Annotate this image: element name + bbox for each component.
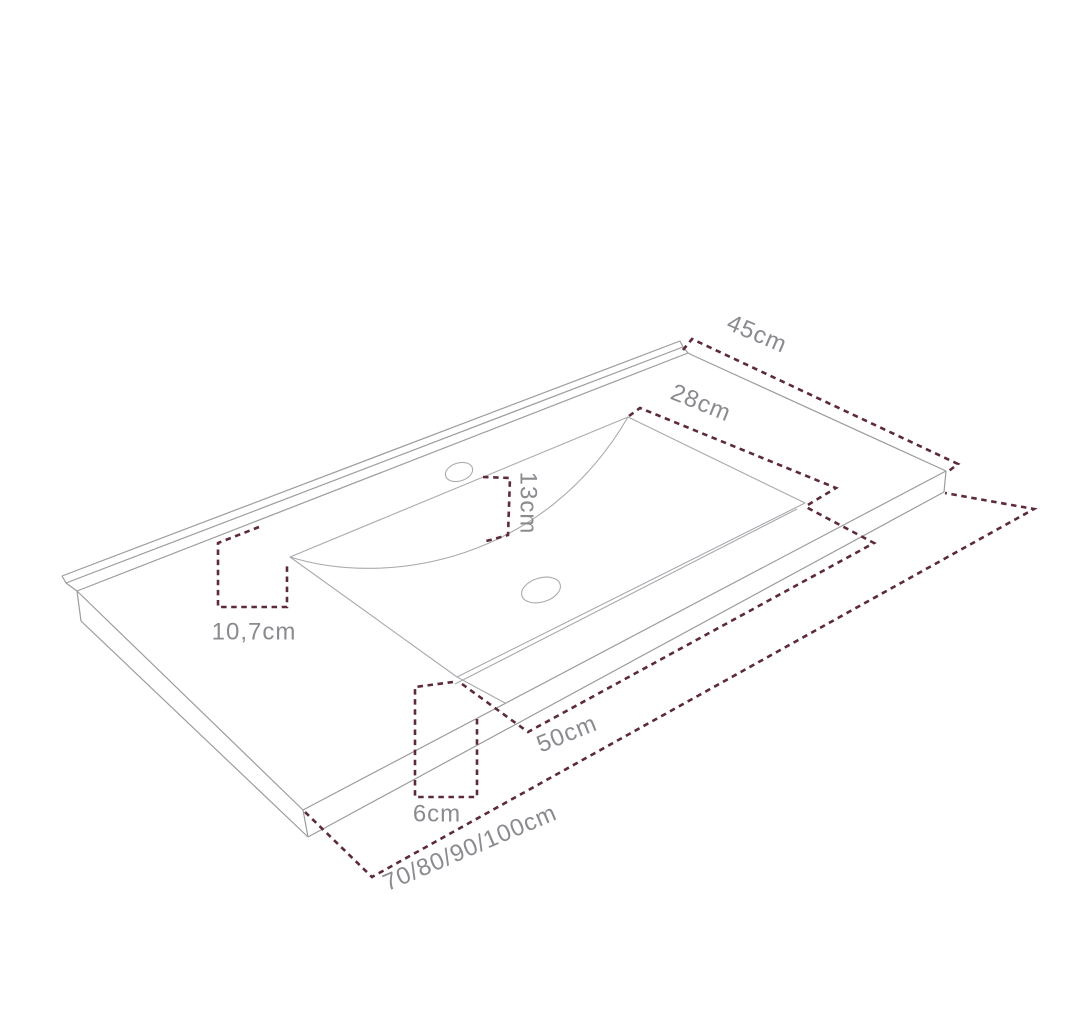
countertop-outline (62, 341, 946, 837)
diagram-canvas: 45cm 28cm 13cm 10,7cm 50cm 6cm 70/80/90/… (0, 0, 1075, 1017)
dimension-label-6cm: 6cm (413, 801, 461, 828)
dimension-line-50cm (462, 507, 874, 732)
dimension-label-28cm: 28cm (667, 379, 735, 428)
slab-right-corner-thickness (944, 471, 946, 492)
backsplash-lip-top-edge (62, 341, 680, 576)
drain-hole (518, 573, 563, 608)
basin-bowl-curve (290, 417, 628, 568)
dimension-labels: 45cm 28cm 13cm 10,7cm 50cm 6cm 70/80/90/… (212, 309, 791, 896)
faucet-hole (443, 459, 475, 484)
backsplash-lip-left-cap (62, 576, 77, 591)
backsplash-lip-base-edge (77, 353, 688, 591)
dimension-line-28cm (629, 408, 836, 506)
countertop-dimension-diagram: 45cm 28cm 13cm 10,7cm 50cm 6cm 70/80/90/… (0, 0, 1075, 1017)
backsplash-lip-front-edge (66, 347, 683, 583)
dimension-line-6cm (415, 682, 477, 797)
slab-left-bottom-edge (81, 621, 308, 837)
dimension-label-width-options: 70/80/90/100cm (379, 799, 561, 897)
dimension-label-50cm: 50cm (533, 710, 601, 759)
basin-rim (290, 417, 805, 677)
slab-front-bottom-edge (308, 492, 944, 837)
dimension-label-45cm: 45cm (723, 309, 791, 358)
dimension-label-10-7cm: 10,7cm (212, 619, 297, 646)
slab-front-edge (303, 471, 946, 810)
slab-left-corner-thickness (77, 591, 81, 621)
dimension-label-13cm: 13cm (515, 472, 542, 535)
dimension-line-13cm (483, 477, 510, 542)
dimension-line-10-7cm (218, 527, 287, 607)
